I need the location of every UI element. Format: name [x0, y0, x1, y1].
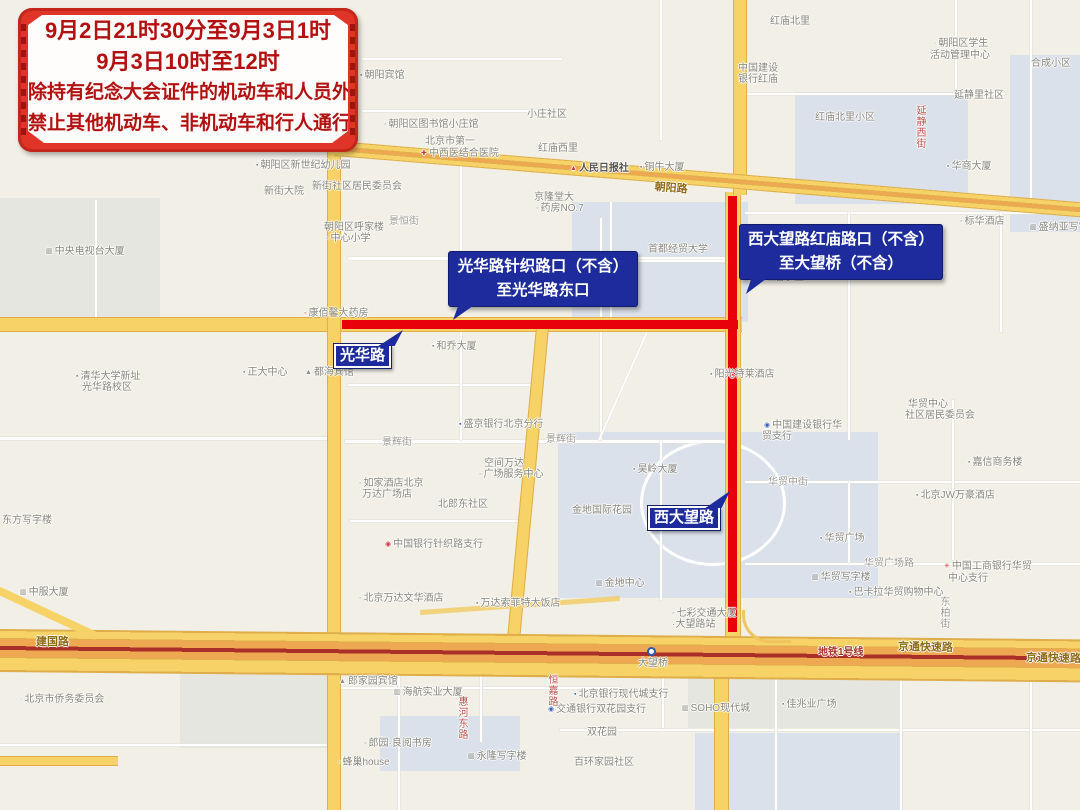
map-label-text: 银行红庙 — [738, 74, 778, 85]
map-label-text: 铜牛大厦 — [644, 162, 684, 173]
poi-icon: ◦ — [359, 595, 361, 602]
map-label-text: 人民日报社 — [579, 163, 629, 174]
map-label: ▥海航实业大厦 — [394, 687, 463, 698]
banner-line-2: 9月3日10时至12时 — [28, 46, 348, 77]
poi-icon: ▪ — [432, 343, 434, 350]
map-label: 社区居民委员会 — [905, 410, 975, 421]
map-label-text: 朝阳区呼家楼 — [324, 222, 384, 233]
map-label-text: 嘉信商务楼 — [972, 457, 1022, 468]
map-label-text: 社区居民委员会 — [905, 410, 975, 421]
map-label: ◦北京万达文华酒店 — [359, 593, 443, 604]
map-label: 万达广场店 — [362, 489, 412, 500]
poi-icon: ▪ — [256, 162, 258, 169]
map-label: 空间万达 — [484, 458, 524, 469]
map-label: ▲都海宾馆 — [305, 367, 354, 378]
map-label: ◉中国建设银行华 — [764, 420, 842, 431]
poi-icon: ▥ — [1030, 224, 1037, 231]
map-label: 红庙北里小区 — [815, 112, 875, 123]
map-label: 活动管理中心 — [930, 50, 990, 61]
map-label: ◦中心小学 — [326, 233, 370, 244]
map-label: 景恒街 — [389, 216, 419, 227]
poi-icon: ◦ — [384, 121, 386, 128]
map-label: 光华路校区 — [82, 382, 132, 393]
map-label-text: 景恒街 — [389, 216, 419, 227]
restriction-notice-banner: 9月2日21时30分至9月3日1时 9月3日10时至12时 除持有纪念大会证件的… — [18, 8, 358, 152]
map-label-text: 景辉街 — [382, 437, 412, 448]
map-label: ◉中国银行针织路支行 — [385, 539, 483, 550]
poi-icon: ▪ — [76, 373, 78, 380]
map-label-text: 如家酒店北京 — [363, 478, 423, 489]
map-label-text: 华贸广场 — [824, 533, 864, 544]
map-label: ▪佳兆业广场 — [782, 699, 836, 710]
poi-icon: ▥ — [596, 580, 603, 587]
banner-panel: 9月2日21时30分至9月3日1时 9月3日10时至12时 除持有纪念大会证件的… — [28, 15, 348, 143]
map-label-text: 红庙北里 — [770, 16, 810, 27]
map-label: ▥金地中心 — [596, 578, 645, 589]
map-label: ▪巴卡拉华贸购物中心 — [849, 587, 943, 598]
map-label-text: 广场服务中心 — [483, 469, 543, 480]
poi-icon: ▪ — [947, 163, 949, 170]
map-label-text: 中国银行针织路支行 — [393, 539, 483, 550]
map-label-text: 和乔大厦 — [436, 341, 476, 352]
street — [0, 437, 335, 440]
street — [848, 483, 850, 563]
poi-icon: ▥ — [394, 689, 401, 696]
map-label-text: ·大望路站 — [672, 619, 715, 630]
map-label-text: 万达广场店 — [362, 489, 412, 500]
road-tag-guanghua-text: 光华路 — [340, 347, 385, 364]
map-label: 中国建设 — [738, 63, 778, 74]
map-label: 建国路 — [36, 637, 69, 648]
street — [1030, 672, 1032, 810]
map-label: 景辉街 — [382, 437, 412, 448]
map-label: 小庄社区 — [527, 109, 567, 120]
poi-icon: ◦ — [536, 205, 538, 212]
road-tag-xidawang-text: 西大望路 — [654, 509, 714, 526]
map-label-text: 金地中心 — [605, 578, 645, 589]
poi-icon: ▪ — [476, 600, 478, 607]
map-label: 新街大院 — [264, 186, 304, 197]
map-label: ▪阳光特莱酒店 — [710, 369, 774, 380]
map-label: ▪朝阳区新世纪幼儿园 — [256, 160, 350, 171]
map-label: ·大望路站 — [672, 619, 715, 630]
map-label-text: 朝阳宾馆 — [364, 70, 404, 81]
poi-icon: ◉ — [548, 706, 554, 713]
map-label-text: 盛纳亚写字楼 — [1039, 222, 1080, 233]
callout-xidawang: 西大望路红庙路口（不含） 至大望桥（不含） — [739, 224, 943, 280]
map-label: ▥SOHO现代城 — [682, 703, 750, 714]
map-label: ▪朝阳宾馆 — [360, 70, 404, 81]
map-label-text: 合成小区 — [1031, 58, 1071, 69]
map-label: ▪昊岭大厦 — [633, 464, 677, 475]
poi-icon: ◦ — [304, 310, 306, 317]
callout-xidawang-line2: 至大望桥（不含） — [744, 252, 938, 276]
map-label: ·朝阳区学生 — [934, 38, 988, 49]
map-label-text: 活动管理中心 — [930, 50, 990, 61]
poi-icon: ▪ — [459, 421, 461, 428]
map-label-text: 巴卡拉华贸购物中心 — [853, 587, 943, 598]
map-label: 北郎东社区 — [438, 499, 488, 510]
map-label-text: 永隆写字楼 — [477, 751, 527, 762]
road-jingtong-expressway — [0, 629, 1080, 682]
map-label-text: 新街大院 — [264, 186, 304, 197]
map-label: 景辉街 — [546, 434, 576, 445]
street — [95, 200, 97, 318]
map-label-text: 北京市侨务委员会 — [24, 694, 104, 705]
map-label-text: 京隆堂大 — [534, 192, 574, 203]
map-label: 百环家园社区 — [574, 757, 634, 768]
street — [0, 744, 330, 746]
restricted-route-xidawang — [728, 196, 737, 632]
street — [1030, 0, 1032, 205]
map-label: ◦药房NO.7 — [536, 203, 584, 214]
map-label-text: 中西医结合医院 — [429, 148, 499, 159]
map-label: 双花园 — [587, 727, 617, 738]
map-label-text: 北京JW万豪酒店 — [920, 490, 994, 501]
map-label: 恒嘉路 — [546, 674, 556, 707]
road-tag-guanghua: 光华路 — [334, 344, 391, 368]
map-label-text: 大望桥 — [638, 658, 668, 669]
banner-line-4: 禁止其他机动车、非机动车和行人通行 — [28, 108, 348, 139]
map-label: ◦康佰馨大药房 — [304, 308, 368, 319]
map-label-text: 华贸中心 — [908, 399, 948, 410]
poi-icon: ▪ — [710, 371, 712, 378]
map-label-text: 光华路校区 — [82, 382, 132, 393]
map-label-text: 延静里社区 — [954, 90, 1004, 101]
map-label: ◦如家酒店北京 — [359, 478, 423, 489]
map-label: 北京市第一 — [425, 136, 475, 147]
map-label-text: 金地国际花园 — [572, 505, 632, 516]
map-label: ·北京市侨务委员会 — [20, 694, 104, 705]
map-label: 大望桥 — [638, 658, 668, 669]
map-label-text: 中央电视台大厦 — [55, 246, 125, 257]
map-label: 合成小区 — [1031, 58, 1071, 69]
map-label: 京通快速路 — [1026, 653, 1080, 665]
street — [775, 663, 777, 810]
street — [952, 400, 954, 560]
map-label-text: 北京银行现代城支行 — [578, 689, 668, 700]
poi-icon: ◉ — [764, 422, 770, 429]
map-label: ▪铜牛大厦 — [640, 162, 684, 173]
map-label: ▪万达索菲特大饭店 — [476, 598, 560, 609]
map-label-text: 郎园·良阅书房 — [368, 738, 431, 749]
poi-icon: ▪ — [574, 691, 576, 698]
map-label: ▪华商大厦 — [947, 161, 991, 172]
map-label-text: 红庙北里小区 — [815, 112, 875, 123]
street — [560, 729, 1080, 731]
map-label: 朝阳路 — [654, 182, 688, 196]
map-canvas[interactable]: 光华路针织路口（不含） 至光华路东口 西大望路红庙路口（不含） 至大望桥（不含）… — [0, 0, 1080, 810]
map-label: ▲郎家园宾馆 — [339, 676, 398, 687]
map-label: 新街社区居民委员会 — [312, 181, 402, 192]
map-label-text: 中心小学 — [330, 233, 370, 244]
map-label: 首都经贸大学 — [648, 244, 708, 255]
map-label: ▥永隆写字楼 — [468, 751, 527, 762]
map-label-text: 贸支行 — [762, 431, 792, 442]
map-label-text: 万达索菲特大饭店 — [480, 598, 560, 609]
map-label-text: 北京市第一 — [425, 136, 475, 147]
road-tag-xidawang: 西大望路 — [648, 506, 720, 530]
street — [900, 663, 902, 810]
map-label: 华贸中街 — [768, 477, 808, 488]
map-label-text: 北郎东社区 — [438, 499, 488, 510]
map-label-text: 朝阳路 — [654, 181, 688, 196]
map-label-text: 佳兆业广场 — [786, 699, 836, 710]
poi-icon: ✳ — [944, 563, 950, 570]
map-label: ✚中西医结合医院 — [421, 148, 499, 159]
map-label: ▪盛京银行北京分行 — [459, 419, 543, 430]
poi-icon: ◦ — [960, 218, 962, 225]
map-label-text: 海航实业大厦 — [403, 687, 463, 698]
map-label-text: 东方写字楼 — [2, 515, 52, 526]
map-label-text: 华贸写字楼 — [821, 572, 871, 583]
poi-icon: ▲ — [339, 678, 346, 685]
poi-icon: · — [20, 696, 22, 703]
map-label-text: 新街社区居民委员会 — [312, 181, 402, 192]
poi-icon: ▥ — [46, 248, 53, 255]
street — [362, 58, 562, 60]
poi-icon: ▪ — [820, 535, 822, 542]
map-label-text: 首都经贸大学 — [648, 244, 708, 255]
street-diagonal — [598, 332, 648, 441]
road-xidawang-south — [714, 668, 729, 810]
map-label: 朝阳区呼家楼 — [324, 222, 384, 233]
map-label: ▫蜂巢house — [338, 757, 390, 768]
map-label: ▥华贸写字楼 — [812, 572, 871, 583]
callout-xidawang-line1: 西大望路红庙路口（不含） — [744, 228, 938, 252]
map-label-text: 百环家园社区 — [574, 757, 634, 768]
map-label: ◦郎园·良阅书房 — [364, 738, 432, 749]
poi-icon: ▪ — [633, 466, 635, 473]
map-label: ▥中央电视台大厦 — [46, 246, 125, 257]
map-label-text: 朝阳区新世纪幼儿园 — [260, 160, 350, 171]
callout-guanghua-line2: 至光华路东口 — [453, 279, 633, 303]
map-label: 中心支行 — [948, 573, 988, 584]
map-label: 金地国际花园 — [572, 505, 632, 516]
poi-icon: ▪ — [849, 589, 851, 596]
map-label-text: 地铁1号线 — [818, 647, 864, 658]
map-label-text: 朝阳区图书馆小庄馆 — [388, 119, 478, 130]
map-label: ▪嘉信商务楼 — [968, 457, 1022, 468]
map-label: ▥盛纳亚写字楼 — [1030, 222, 1080, 233]
map-label: ▪华贸广场 — [820, 533, 864, 544]
poi-icon: ◦ — [479, 471, 481, 478]
map-label-text: 延静西街 — [914, 105, 925, 149]
map-label: 延静西街 — [914, 105, 924, 149]
poi-icon: ▲ — [570, 165, 577, 172]
map-label: ▪正大中心 — [243, 367, 287, 378]
poi-icon: ▥ — [20, 589, 27, 596]
map-label: 红庙北里 — [770, 16, 810, 27]
map-label-text: 建国路 — [36, 636, 69, 648]
map-label-text: 恒嘉路 — [546, 674, 557, 707]
map-label: 华贸广场路 — [864, 558, 914, 569]
map-label-text: 昊岭大厦 — [637, 464, 677, 475]
poi-icon: ◦ — [364, 740, 366, 747]
map-label: ▪北京银行现代城支行 — [574, 689, 668, 700]
map-label-text: 华贸广场路 — [864, 558, 914, 569]
street — [480, 672, 482, 742]
poi-icon: ✚ — [421, 150, 427, 157]
poi-icon: ▪ — [243, 369, 245, 376]
map-label-text: 小庄社区 — [527, 109, 567, 120]
map-label: ◉交通银行双花园支行 — [548, 704, 646, 715]
map-label: 延静里社区 — [954, 90, 1004, 101]
map-label: 华贸中心 — [908, 399, 948, 410]
map-label-text: 朝阳区学生 — [938, 38, 988, 49]
poi-icon: ▥ — [468, 753, 475, 760]
map-label: 贸支行 — [762, 431, 792, 442]
street — [348, 384, 538, 386]
map-label-text: 东柏街 — [938, 596, 949, 629]
map-label: ◦七彩交通大厦 — [672, 608, 736, 619]
map-label-text: 中国建设银行华 — [772, 420, 842, 431]
map-label-text: 北京万达文华酒店 — [363, 593, 443, 604]
map-label-text: 京通快速路 — [1026, 652, 1080, 665]
map-label: 东方写字楼 — [2, 515, 52, 526]
map-label-text: 中国建设 — [738, 63, 778, 74]
street — [600, 332, 602, 440]
poi-icon: ▪ — [360, 72, 362, 79]
map-label-text: 京通快速路 — [898, 641, 953, 654]
map-label-text: 蜂巢house — [342, 757, 389, 768]
map-label: ◦标华酒店 — [960, 216, 1004, 227]
map-label-text: 正大中心 — [247, 367, 287, 378]
map-label-text: 康佰馨大药房 — [308, 308, 368, 319]
poi-icon: ◦ — [326, 235, 328, 242]
map-label: ▲人民日报社 — [570, 163, 629, 174]
map-label-text: 景辉街 — [546, 434, 576, 445]
map-label-text: 空间万达 — [484, 458, 524, 469]
banner-line-1: 9月2日21时30分至9月3日1时 — [28, 15, 348, 46]
map-label-text: SOHO现代城 — [691, 703, 750, 714]
callout-guanghua-line1: 光华路针织路口（不含） — [453, 255, 633, 279]
map-label-text: 郎家园宾馆 — [348, 676, 398, 687]
street — [350, 520, 530, 522]
poi-icon: ▪ — [916, 492, 918, 499]
map-label-text: 红庙西里 — [538, 143, 578, 154]
poi-icon: ▲ — [305, 369, 312, 376]
poi-icon: ▪ — [968, 459, 970, 466]
map-label-text: 药房NO.7 — [540, 203, 583, 214]
poi-icon: ▪ — [782, 701, 784, 708]
street — [1000, 212, 1002, 332]
map-label: 惠河东路 — [456, 696, 466, 740]
map-label: ▪北京JW万豪酒店 — [916, 490, 995, 501]
poi-icon: ▫ — [338, 759, 340, 766]
map-label-text: 中服大厦 — [29, 587, 69, 598]
poi-icon: ◦ — [359, 480, 361, 487]
map-label-text: 交通银行双花园支行 — [556, 704, 646, 715]
map-label-text: 双花园 — [587, 727, 617, 738]
road-xidawang-north — [733, 0, 747, 195]
map-label: 银行红庙 — [738, 74, 778, 85]
map-label: ▪清华大学新址 — [76, 371, 140, 382]
poi-icon: ▪ — [640, 164, 642, 171]
map-label-text: 都海宾馆 — [314, 367, 354, 378]
map-label-text: 中心支行 — [948, 573, 988, 584]
road-tag-guanghua-pointer — [373, 330, 403, 346]
map-label-text: 惠河东路 — [456, 696, 467, 740]
map-label: ▥中服大厦 — [20, 587, 69, 598]
map-label-text: 盛京银行北京分行 — [463, 419, 543, 430]
block-cctv — [0, 198, 160, 320]
poi-icon: ▥ — [682, 705, 689, 712]
road-stub-southwest — [0, 756, 118, 766]
street — [660, 0, 662, 140]
map-label-text: 中国工商银行华贸 — [952, 561, 1032, 572]
poi-icon: · — [934, 40, 936, 47]
poi-icon: ◦ — [672, 610, 674, 617]
map-label: 京隆堂大 — [534, 192, 574, 203]
map-label: ✳中国工商银行华贸 — [944, 561, 1032, 572]
map-label: ▪和乔大厦 — [432, 341, 476, 352]
map-label: 红庙西里 — [538, 143, 578, 154]
poi-icon: ▥ — [812, 574, 819, 581]
map-label: 地铁1号线 — [818, 647, 864, 658]
map-label-text: 华商大厦 — [951, 161, 991, 172]
poi-icon: ◉ — [385, 541, 391, 548]
map-label: 东柏街 — [938, 596, 948, 629]
metro-station-icon — [647, 647, 656, 656]
map-label-text: 华贸中街 — [768, 477, 808, 488]
map-label-text: 阳光特莱酒店 — [714, 369, 774, 380]
map-label: ◦朝阳区图书馆小庄馆 — [384, 119, 478, 130]
banner-line-3: 除持有纪念大会证件的机动车和人员外 — [28, 77, 348, 108]
map-label-text: 清华大学新址 — [80, 371, 140, 382]
restricted-route-guanghua — [342, 320, 738, 329]
map-label: ◦广场服务中心 — [479, 469, 543, 480]
map-label-text: 七彩交通大厦 — [676, 608, 736, 619]
map-label-text: 标华酒店 — [964, 216, 1004, 227]
callout-guanghua: 光华路针织路口（不含） 至光华路东口 — [448, 251, 638, 307]
map-label: 京通快速路 — [898, 642, 953, 654]
